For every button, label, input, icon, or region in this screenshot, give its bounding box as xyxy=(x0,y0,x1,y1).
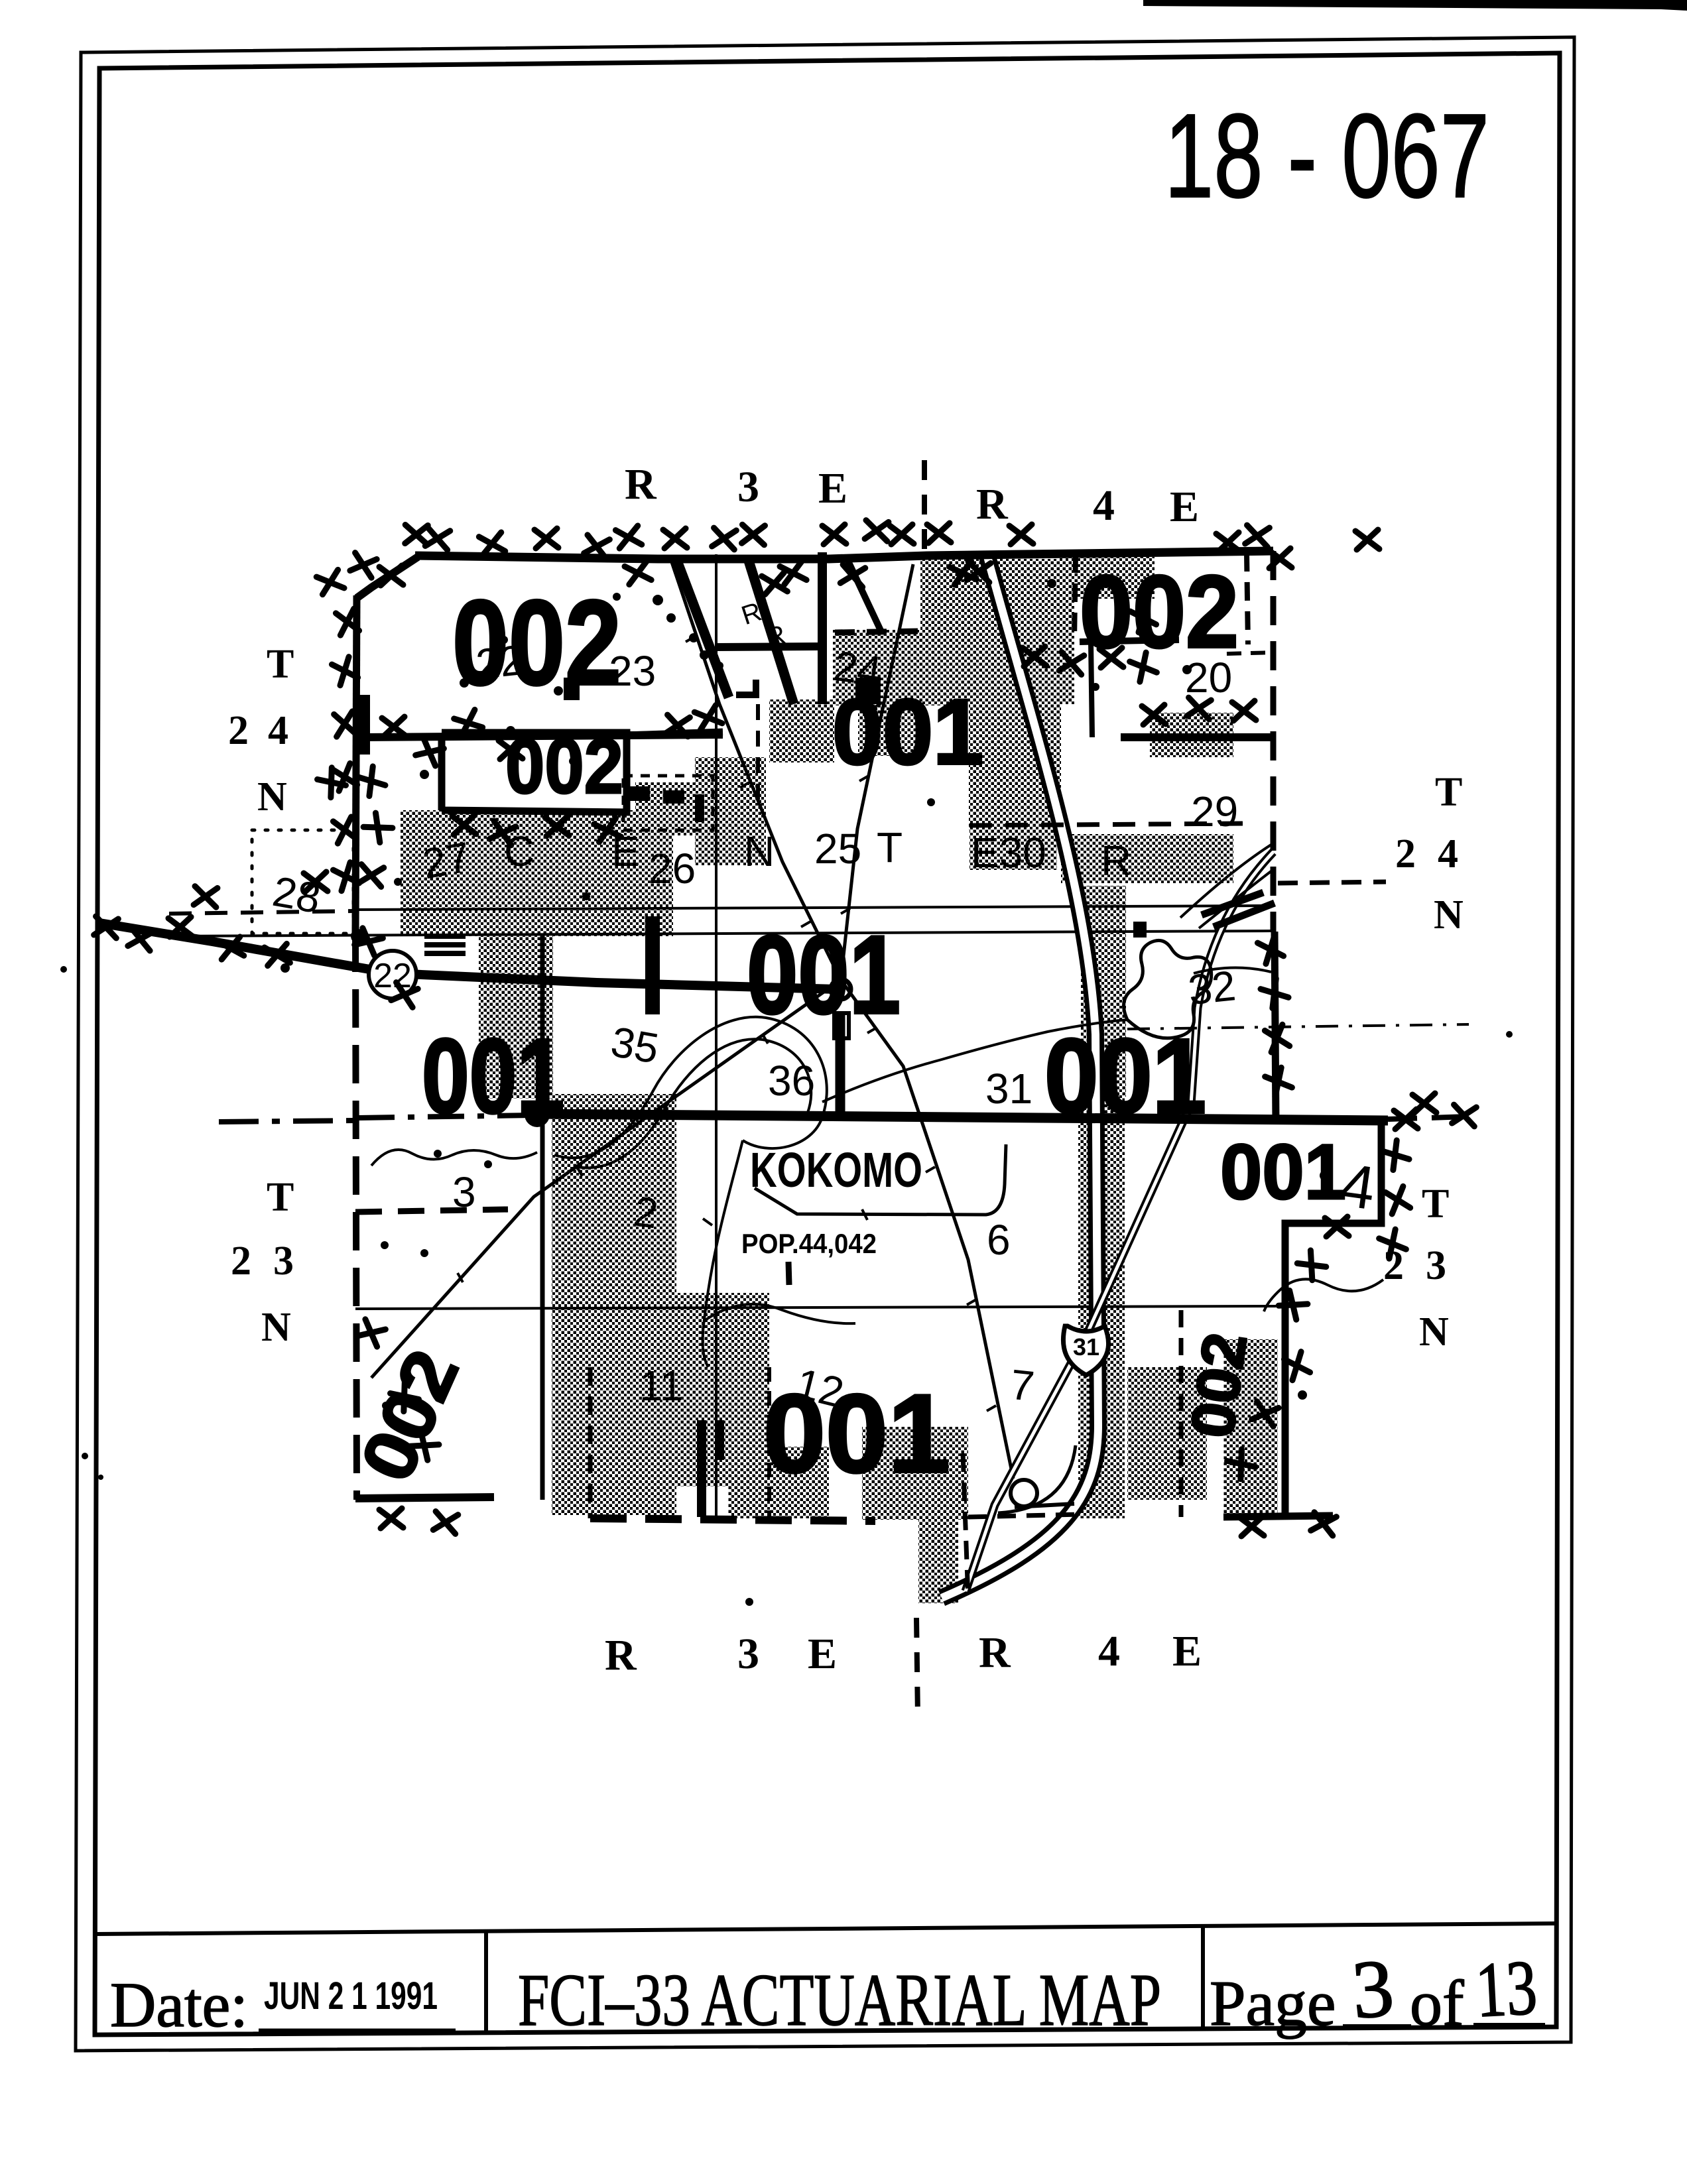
svg-text:3: 3 xyxy=(452,1168,476,1216)
svg-text:4: 4 xyxy=(1438,831,1458,877)
svg-text:R: R xyxy=(1101,837,1131,884)
svg-text:27: 27 xyxy=(419,833,474,888)
svg-text:001: 001 xyxy=(832,680,983,784)
svg-text:E: E xyxy=(818,464,847,513)
svg-text:3: 3 xyxy=(737,463,759,511)
svg-text:E30: E30 xyxy=(971,829,1046,877)
svg-text:T: T xyxy=(1422,1182,1449,1227)
svg-text:FCI–33 ACTUARIAL MAP: FCI–33 ACTUARIAL MAP xyxy=(518,1959,1161,2041)
svg-text:T: T xyxy=(1435,770,1462,815)
svg-text:001: 001 xyxy=(1044,1016,1206,1135)
svg-text:18 - 067: 18 - 067 xyxy=(1164,90,1489,223)
svg-text:KOKOMO: KOKOMO xyxy=(750,1142,922,1197)
svg-text:13: 13 xyxy=(1473,1944,1539,2034)
svg-text:T: T xyxy=(877,823,903,871)
svg-text:22: 22 xyxy=(373,957,412,995)
svg-text:N: N xyxy=(257,774,287,819)
svg-text:N: N xyxy=(261,1305,291,1350)
svg-text:4: 4 xyxy=(268,708,288,753)
svg-text:001: 001 xyxy=(763,1371,950,1496)
svg-text:3: 3 xyxy=(273,1239,294,1284)
svg-text:002: 002 xyxy=(1178,1329,1260,1442)
svg-text:of: of xyxy=(1410,1968,1464,2039)
svg-text:6: 6 xyxy=(987,1216,1011,1264)
svg-text:POP.44,042: POP.44,042 xyxy=(741,1228,877,1259)
svg-text:R: R xyxy=(605,1631,637,1679)
svg-text:2: 2 xyxy=(1383,1243,1404,1288)
svg-text:001: 001 xyxy=(1220,1128,1346,1216)
svg-text:25: 25 xyxy=(814,825,861,873)
svg-text:E: E xyxy=(1172,1627,1202,1675)
svg-text:35: 35 xyxy=(607,1018,662,1073)
svg-text:31: 31 xyxy=(985,1065,1032,1113)
svg-text:3: 3 xyxy=(1349,1942,1397,2035)
svg-text:26: 26 xyxy=(649,845,696,892)
svg-text:JUN 2 1 1991: JUN 2 1 1991 xyxy=(264,1974,438,2018)
svg-text:2: 2 xyxy=(231,1239,251,1284)
svg-text:E: E xyxy=(611,827,640,875)
svg-text:22: 22 xyxy=(473,636,525,688)
svg-text:32: 32 xyxy=(1186,961,1237,1014)
svg-text:C: C xyxy=(504,827,534,875)
svg-text:R: R xyxy=(976,480,1009,528)
svg-text:E: E xyxy=(808,1630,837,1678)
svg-text:36: 36 xyxy=(768,1057,815,1105)
svg-text:T: T xyxy=(267,642,294,687)
svg-text:3: 3 xyxy=(1426,1243,1446,1288)
svg-text:23: 23 xyxy=(609,647,656,695)
svg-text:001: 001 xyxy=(422,1016,564,1135)
svg-text:N: N xyxy=(1419,1309,1449,1355)
svg-text:3: 3 xyxy=(737,1630,759,1678)
svg-text:20: 20 xyxy=(1185,654,1232,701)
svg-text:2: 2 xyxy=(1395,831,1416,877)
svg-text:24: 24 xyxy=(831,642,885,696)
svg-text:2: 2 xyxy=(228,708,249,753)
svg-text:R: R xyxy=(979,1628,1011,1677)
svg-text:N: N xyxy=(744,827,775,875)
svg-text:002: 002 xyxy=(505,723,623,810)
svg-text:E: E xyxy=(1170,483,1199,531)
svg-text:001: 001 xyxy=(747,912,901,1037)
svg-text:4: 4 xyxy=(1093,481,1115,530)
svg-text:Date:: Date: xyxy=(110,1969,248,2040)
svg-text:4: 4 xyxy=(1098,1627,1120,1675)
svg-text:R: R xyxy=(625,460,657,509)
svg-text:11: 11 xyxy=(639,1362,683,1410)
svg-text:29: 29 xyxy=(1191,788,1238,835)
svg-text:Page: Page xyxy=(1210,1968,1336,2039)
svg-text:002: 002 xyxy=(1080,554,1239,669)
svg-text:N: N xyxy=(1434,892,1464,938)
svg-text:T: T xyxy=(267,1175,294,1220)
svg-text:7: 7 xyxy=(1008,1361,1036,1410)
svg-text:28: 28 xyxy=(269,867,324,922)
svg-text:31: 31 xyxy=(1073,1333,1099,1361)
